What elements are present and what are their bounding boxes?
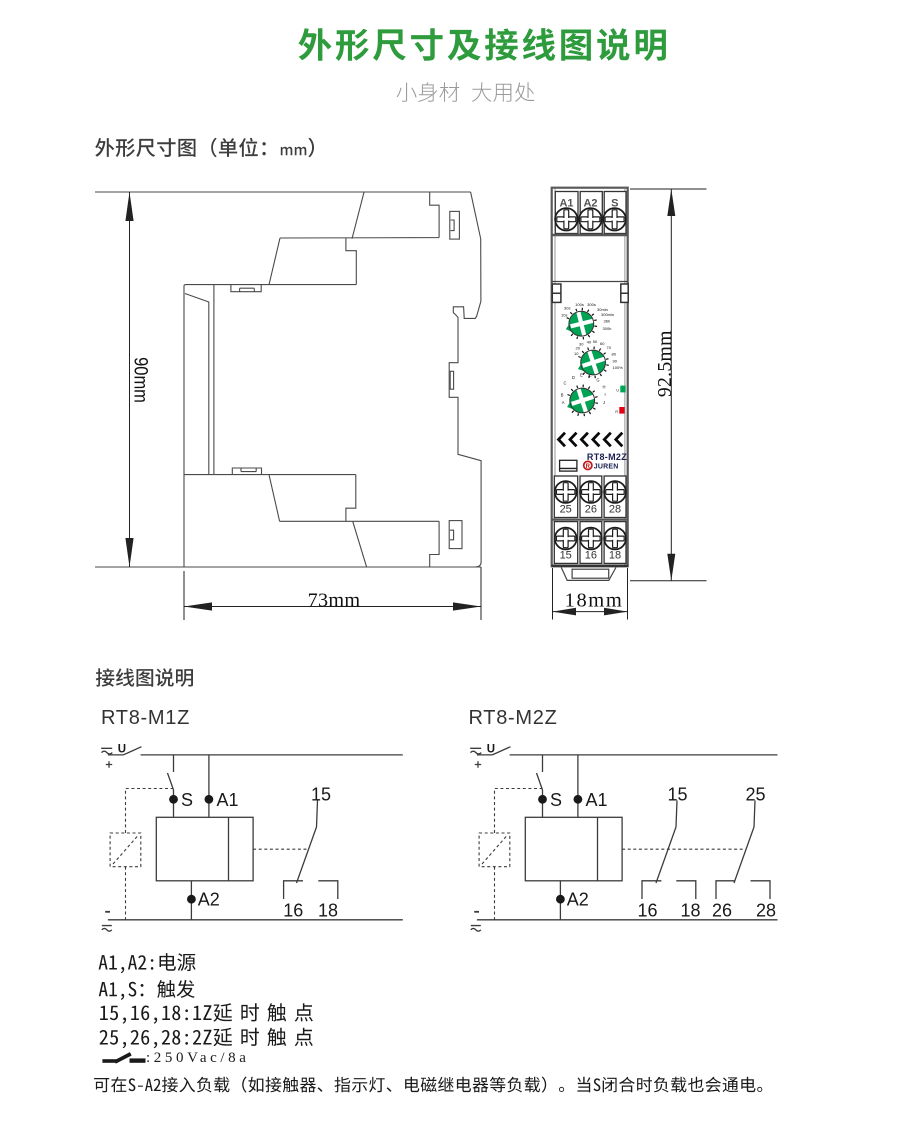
svg-text:15: 15 xyxy=(311,785,331,805)
svg-text:25: 25 xyxy=(560,504,572,516)
svg-text:A1: A1 xyxy=(586,790,608,810)
svg-text:R: R xyxy=(586,464,591,470)
svg-text:300s: 300s xyxy=(587,302,596,307)
svg-text:10: 10 xyxy=(574,351,579,356)
svg-text:50: 50 xyxy=(593,339,598,344)
svg-text:B: B xyxy=(561,393,564,398)
svg-text:15: 15 xyxy=(667,785,687,805)
svg-text:S: S xyxy=(550,790,562,810)
svg-text:18mm: 18mm xyxy=(565,589,624,611)
svg-text:26: 26 xyxy=(712,901,732,921)
svg-text:40: 40 xyxy=(587,340,592,345)
svg-text::250Vac/8a: :250Vac/8a xyxy=(146,1050,249,1066)
svg-text:C: C xyxy=(564,381,567,386)
svg-text:300h: 300h xyxy=(603,326,612,331)
svg-text:S: S xyxy=(181,790,193,810)
svg-text:10s: 10s xyxy=(561,313,567,318)
svg-text:25: 25 xyxy=(745,785,765,805)
svg-text:H: H xyxy=(603,385,606,390)
svg-text:I: I xyxy=(605,392,606,397)
svg-text:30: 30 xyxy=(579,342,584,347)
svg-text:80: 80 xyxy=(612,352,617,357)
svg-text:28: 28 xyxy=(609,504,621,516)
svg-text:16: 16 xyxy=(283,901,303,921)
svg-text:90mm: 90mm xyxy=(130,357,151,403)
svg-text:92.5mm: 92.5mm xyxy=(654,330,676,397)
svg-text:30s: 30s xyxy=(564,306,570,311)
svg-text:100s: 100s xyxy=(575,302,584,307)
svg-text:J: J xyxy=(603,400,605,405)
svg-text:18: 18 xyxy=(609,550,621,562)
svg-text:U: U xyxy=(616,389,619,393)
svg-text:JUREN: JUREN xyxy=(594,463,619,470)
svg-text:73mm: 73mm xyxy=(308,589,361,611)
svg-text:A2: A2 xyxy=(198,890,220,910)
svg-text:RT8-M1Z: RT8-M1Z xyxy=(101,707,190,729)
svg-text:E: E xyxy=(580,373,583,378)
svg-text:D: D xyxy=(572,375,575,380)
svg-text:70: 70 xyxy=(607,345,612,350)
svg-text:16: 16 xyxy=(585,550,597,562)
svg-text:A: A xyxy=(562,400,565,405)
svg-text:18: 18 xyxy=(318,901,338,921)
svg-text:15: 15 xyxy=(560,550,572,562)
svg-text:A1: A1 xyxy=(217,790,239,810)
svg-text:U: U xyxy=(487,744,495,756)
svg-text:90: 90 xyxy=(613,359,618,364)
svg-text:18: 18 xyxy=(680,901,700,921)
svg-text:A2: A2 xyxy=(567,890,589,910)
svg-text:G: G xyxy=(596,378,599,383)
svg-text:RT8-M2Z: RT8-M2Z xyxy=(469,707,558,729)
svg-text:60: 60 xyxy=(600,341,605,346)
svg-text:36h: 36h xyxy=(604,319,611,324)
svg-text:R: R xyxy=(615,410,618,414)
svg-text:U: U xyxy=(118,744,126,756)
svg-text:300min: 300min xyxy=(601,312,614,317)
svg-text:16: 16 xyxy=(637,901,657,921)
svg-text:100%: 100% xyxy=(613,365,624,370)
svg-text:RT8-M2Z: RT8-M2Z xyxy=(587,452,627,462)
svg-text:26: 26 xyxy=(585,504,597,516)
svg-text:28: 28 xyxy=(756,901,776,921)
